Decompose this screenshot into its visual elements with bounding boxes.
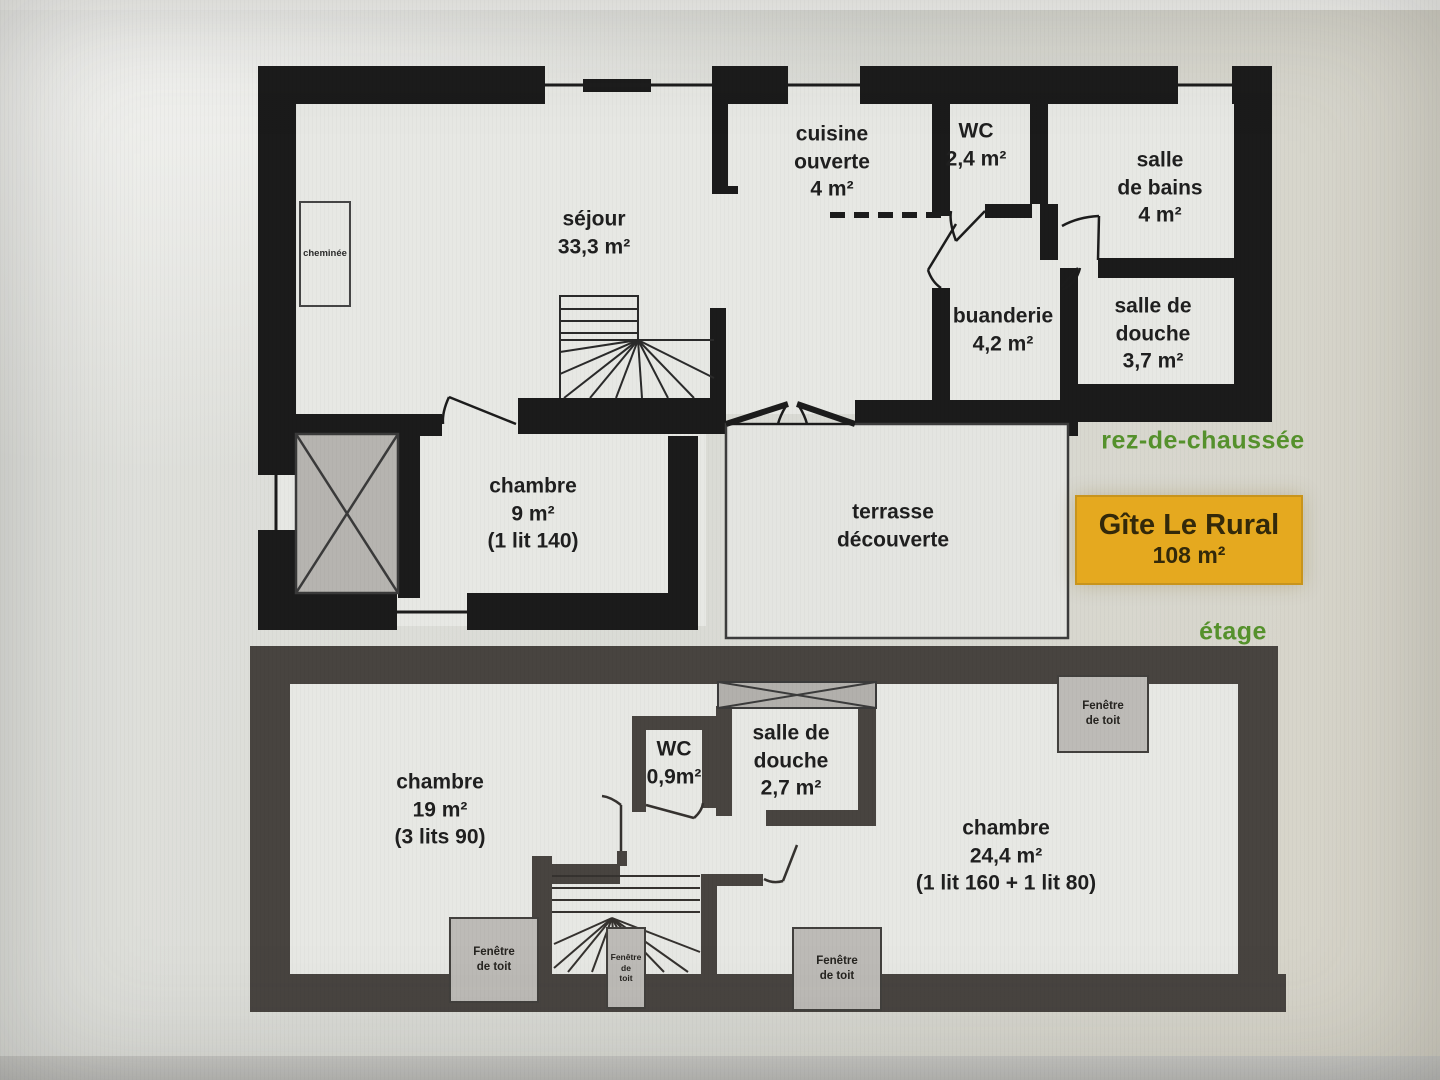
legend-area: 108 m²	[1153, 542, 1226, 570]
room-label-sejour: séjour 33,3 m²	[558, 205, 630, 260]
room-label-chambre-24: chambre 24,4 m² (1 lit 160 + 1 lit 80)	[916, 814, 1096, 897]
room-label-salle-de-douche-rdc: salle de douche 3,7 m²	[1114, 292, 1191, 375]
room-label-cuisine: cuisine ouverte 4 m²	[794, 120, 870, 203]
floor-plan-photo: séjour 33,3 m² cuisine ouverte 4 m² WC 2…	[0, 0, 1440, 1080]
room-label-salle-de-douche-etage: salle de douche 2,7 m²	[752, 719, 829, 802]
room-label-wc-rdc: WC 2,4 m²	[946, 117, 1007, 172]
shaft-crossed-box	[296, 434, 398, 593]
room-label-buanderie: buanderie 4,2 m²	[953, 302, 1053, 357]
roof-window-label-stairs: Fenêtre de toit	[611, 952, 642, 984]
room-label-terrasse: terrasse découverte	[837, 498, 949, 553]
legend-title: Gîte Le Rural	[1099, 510, 1280, 542]
room-label-wc-etage: WC 0,9m²	[647, 735, 702, 790]
roof-window-label-middle: Fenêtre de toit	[816, 954, 858, 984]
floor-label-rdc: rez-de-chaussée	[1101, 425, 1304, 458]
etage-hatched-strip	[718, 682, 876, 708]
roof-window-label-left: Fenêtre de toit	[473, 945, 515, 975]
room-label-chambre-9: chambre 9 m² (1 lit 140)	[487, 472, 578, 555]
roof-window-label-topright: Fenêtre de toit	[1082, 699, 1124, 729]
floor-label-etage: étage	[1199, 616, 1267, 649]
legend-gite: Gîte Le Rural 108 m²	[1075, 495, 1303, 585]
room-label-chambre-19: chambre 19 m² (3 lits 90)	[394, 768, 485, 851]
room-label-salle-de-bains: salle de bains 4 m²	[1117, 146, 1202, 229]
label-cheminee: cheminée	[303, 248, 347, 260]
